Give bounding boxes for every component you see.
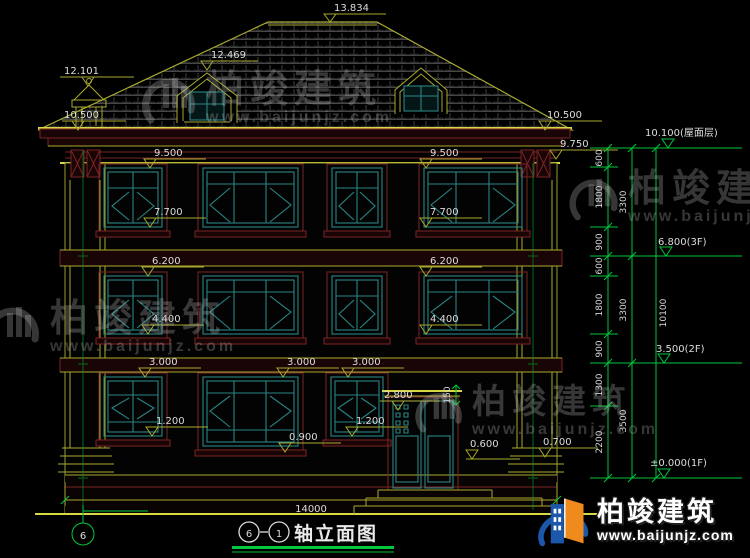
mark-eave-left-label: 10.500 [64,110,99,121]
level-2f: 3.500(2F) [656,344,705,363]
brand-logo-url: www.baijunjz.com [597,527,734,543]
title-block: 6 1 轴立面图 [232,522,394,552]
title-axis-to: 1 [276,529,282,540]
mark-plinth-label: 0.700 [543,437,572,448]
mark-f1-top-c-label: 3.000 [352,357,381,368]
right-dimension-block: 600 1800 900 600 1800 900 1300 2200 3300… [590,127,742,482]
brand-logo: 柏竣建筑 www.baijunjz.com [533,486,734,554]
mark-dormer-label: 12.469 [211,50,246,61]
level-1f-label: ±0.000(1F) [650,458,707,469]
mark-chimney-label: 12.101 [64,66,99,77]
title-axis-from: 6 [246,529,252,540]
mark-door-dim-label: 150 [443,386,453,403]
mark-f1-top-b-label: 3.000 [287,357,316,368]
mark-f3-top-r-label: 9.500 [430,148,459,159]
dim-floor-3500: 3500 [619,409,629,432]
mark-f2-sill-r-label: 4.400 [430,314,459,325]
dim-seg-1300: 1300 [595,373,605,396]
mark-f2-sill-l-label: 4.400 [152,314,181,325]
dim-seg-1800a: 1800 [595,185,605,208]
dim-total-10100: 10100 [659,298,669,327]
mark-f1-sill-b-label: 1.200 [356,416,385,427]
level-roof-label: 10.100(屋面层) [645,127,718,139]
level-roof: 10.100(屋面层) [645,127,718,148]
mark-ridge-label: 13.834 [334,3,369,14]
mark-f3-sill-r-label: 7.700 [430,207,459,218]
drawing-title: 轴立面图 [294,522,378,545]
dim-floor-3300b: 3300 [619,298,629,321]
mark-f2-top-r-label: 6.200 [430,256,459,267]
mark-f1-sill-a-label: 1.200 [156,416,185,427]
dim-seg-900a: 900 [595,233,605,250]
title-underline [232,546,394,549]
drawing-canvas: 13.834 12.469 12.101 10.500 10.500 9.750… [0,0,750,558]
roof [38,22,572,130]
dim-seg-900b: 900 [595,340,605,357]
dim-seg-1800b: 1800 [595,293,605,316]
mark-door-head-label: 2.800 [384,390,413,401]
marker-ridge: 13.834 [324,3,386,22]
mark-f3-top-l-label: 9.500 [154,148,183,159]
mark-f1-top-a-label: 3.000 [149,357,178,368]
dim-seg-2200: 2200 [595,430,605,453]
dim-total-width-label: 14000 [295,504,327,515]
level-3f-label: 6.800(3F) [658,237,707,248]
cad-elevation-drawing: 13.834 12.469 12.101 10.500 10.500 9.750… [0,0,750,558]
mark-f3-sill-l-label: 7.700 [154,207,183,218]
brand-logo-icon [533,486,591,554]
cornice [38,128,572,163]
level-3f: 6.800(3F) [658,237,707,256]
mark-cornice-right-label: 9.750 [560,139,589,150]
dim-floor-3300a: 3300 [619,190,629,213]
axis-bubble-label: 6 [80,531,86,542]
axis-bubble-6: 6 [72,505,148,545]
mark-porch-label: 0.600 [470,439,499,450]
mark-sill-low-label: 0.900 [289,432,318,443]
floor-band-3f [60,250,562,266]
dim-seg-600b: 600 [595,257,605,274]
level-2f-label: 3.500(2F) [656,344,705,355]
mark-f2-top-l-label: 6.200 [152,256,181,267]
marker-chimney: 12.101 [60,66,134,86]
brand-logo-name: 柏竣建筑 [597,497,734,527]
mark-eave-right-label: 10.500 [547,110,582,121]
dim-seg-600a: 600 [595,149,605,166]
